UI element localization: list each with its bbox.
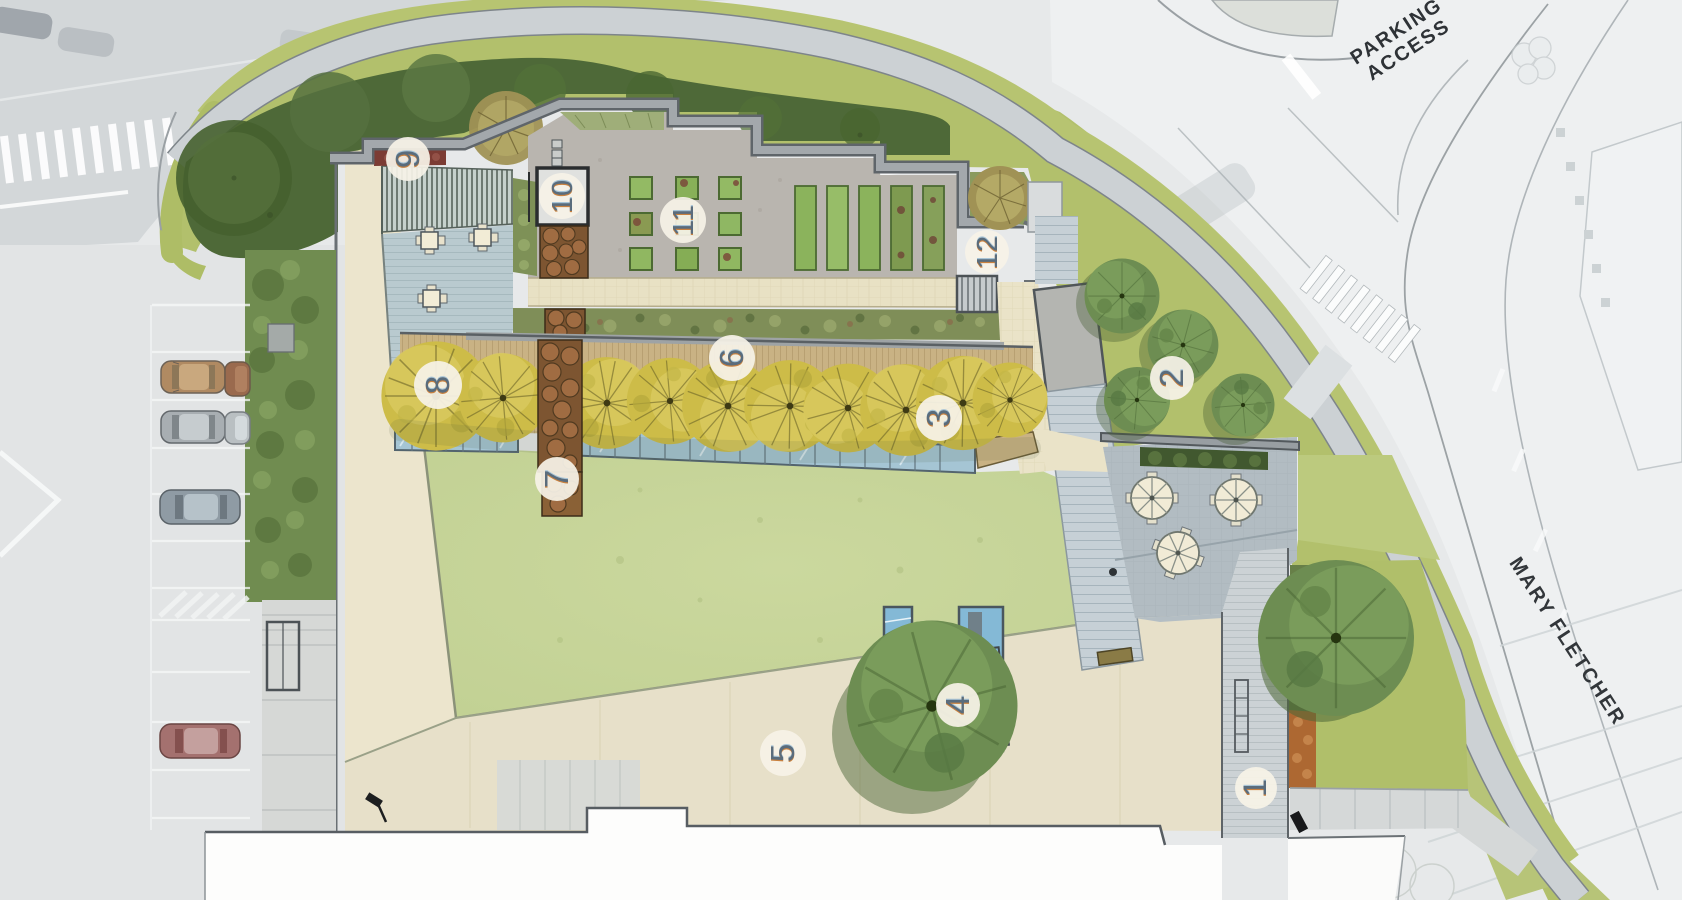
svg-text:8: 8 <box>419 376 456 394</box>
svg-text:3: 3 <box>920 409 957 427</box>
svg-text:12: 12 <box>972 235 1004 269</box>
svg-text:7: 7 <box>538 470 575 488</box>
svg-text:2: 2 <box>1153 369 1190 387</box>
svg-text:10: 10 <box>547 179 579 213</box>
svg-text:4: 4 <box>939 696 976 714</box>
svg-text:6: 6 <box>713 349 750 367</box>
svg-text:1: 1 <box>1237 779 1273 797</box>
svg-text:11: 11 <box>668 204 700 236</box>
svg-text:9: 9 <box>389 150 426 168</box>
svg-text:5: 5 <box>764 744 801 762</box>
